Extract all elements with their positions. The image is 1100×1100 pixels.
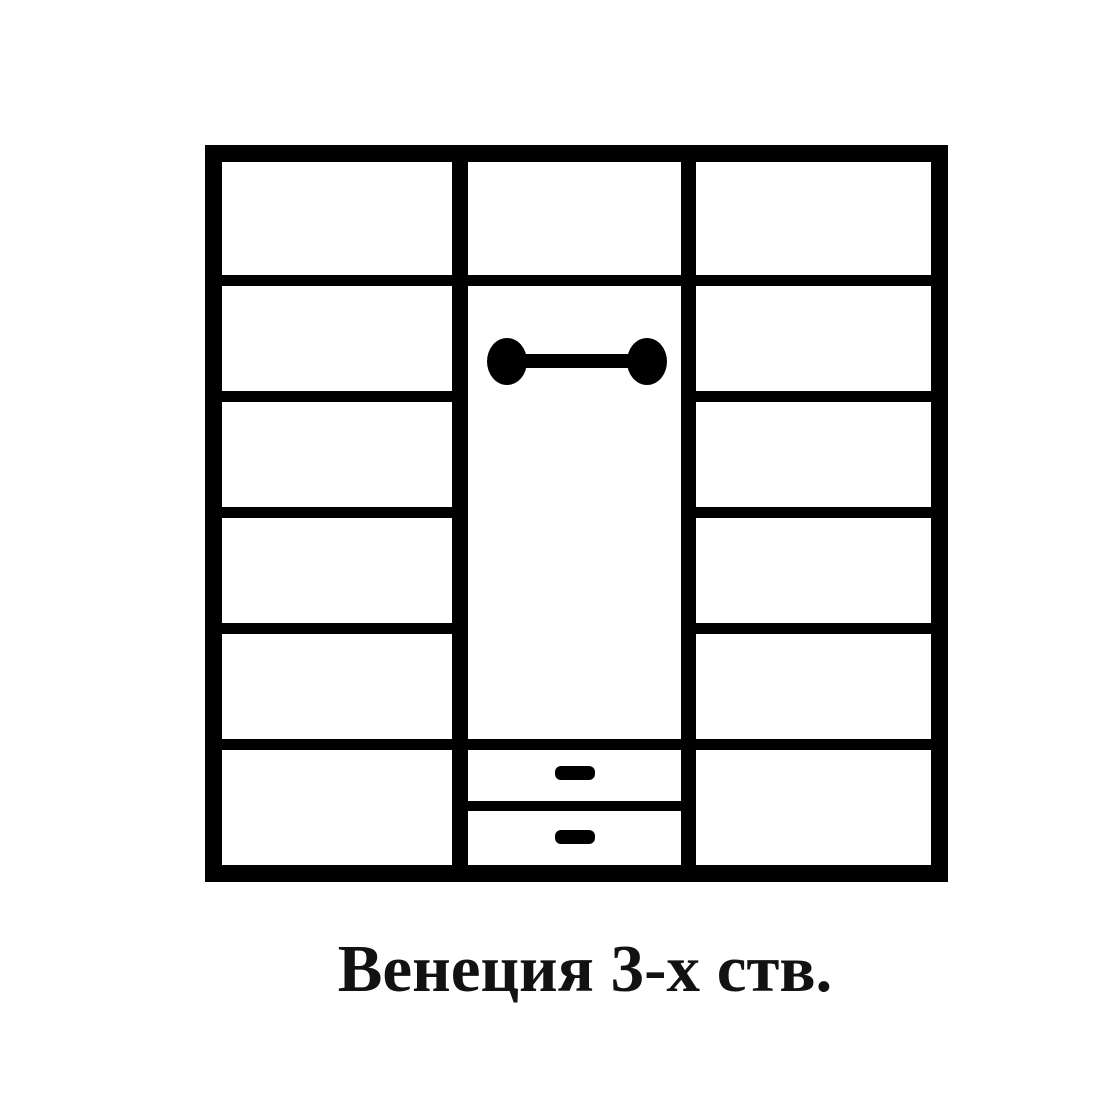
left-shelf-4 <box>222 623 452 634</box>
left-shelf-1 <box>222 275 452 286</box>
partition-left <box>452 162 468 865</box>
diagram-caption: Венеция 3-х ств. <box>205 936 965 1003</box>
partition-right <box>681 162 696 865</box>
right-shelf-4 <box>696 623 931 634</box>
drawer-handle-1 <box>555 766 595 780</box>
left-shelf-3 <box>222 507 452 518</box>
left-shelf-2 <box>222 391 452 402</box>
right-shelf-2 <box>696 391 931 402</box>
right-shelf-3 <box>696 507 931 518</box>
middle-top-shelf <box>468 275 681 286</box>
wardrobe-diagram: Венеция 3-х ств. <box>0 0 1100 1100</box>
left-shelf-5 <box>222 739 452 750</box>
drawer-top-shelf <box>468 739 681 750</box>
drawer-handle-2 <box>555 830 595 844</box>
right-shelf-1 <box>696 275 931 286</box>
drawer-divider <box>468 801 681 811</box>
right-shelf-5 <box>696 739 931 750</box>
rod-end-right <box>627 338 667 385</box>
